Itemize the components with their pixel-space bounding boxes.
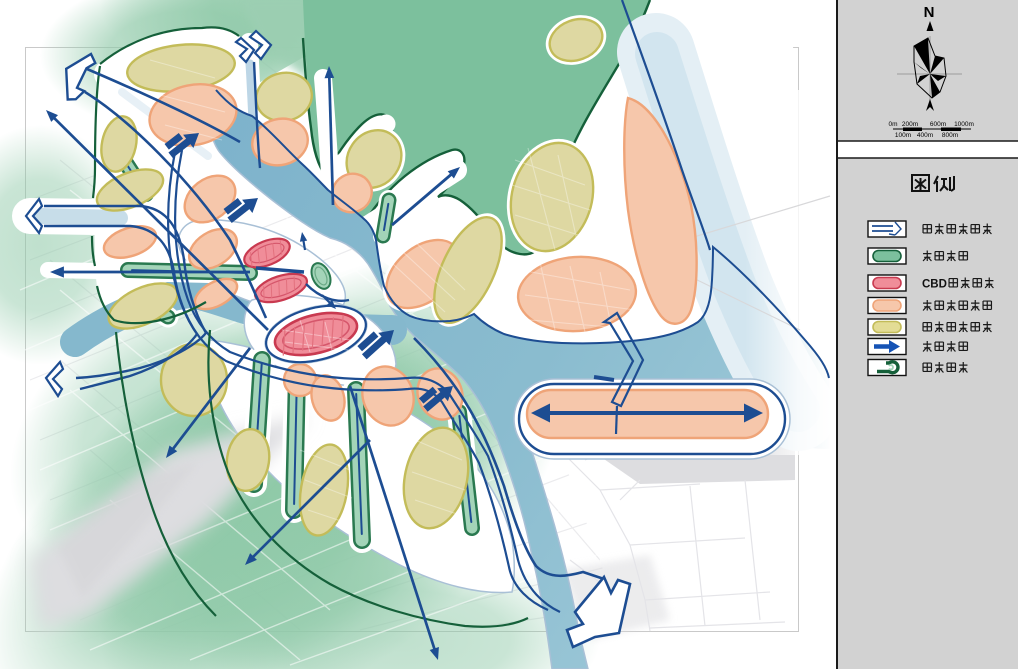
svg-text:600m: 600m — [930, 121, 946, 128]
svg-text:N: N — [924, 4, 935, 21]
svg-text:CBD: CBD — [922, 279, 947, 291]
svg-text:200m: 200m — [902, 121, 918, 128]
svg-text:800m: 800m — [942, 132, 958, 139]
svg-text:1000m: 1000m — [954, 121, 974, 128]
svg-text:100m: 100m — [895, 132, 911, 139]
svg-text:0m: 0m — [888, 121, 897, 128]
svg-text:400m: 400m — [917, 132, 933, 139]
